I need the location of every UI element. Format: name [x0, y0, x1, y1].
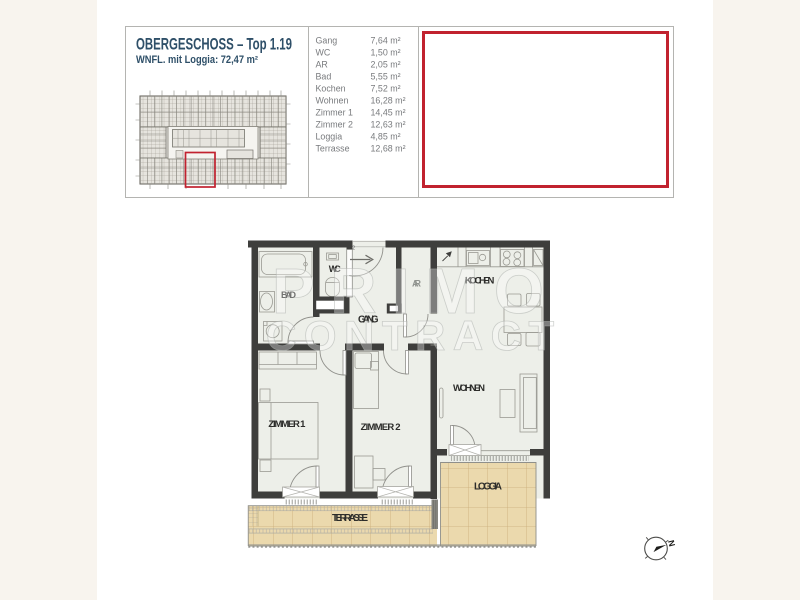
- svg-text:ZIMMER 2: ZIMMER 2: [361, 422, 401, 433]
- svg-text:ZIMMER 1: ZIMMER 1: [268, 419, 306, 430]
- svg-text:7,64 m²: 7,64 m²: [371, 35, 401, 45]
- svg-text:N: N: [666, 539, 677, 547]
- svg-text:7,52 m²: 7,52 m²: [371, 84, 401, 94]
- svg-text:Wohnen: Wohnen: [316, 96, 349, 106]
- svg-text:LOGGIA: LOGGIA: [474, 481, 502, 492]
- svg-text:WOHNEN: WOHNEN: [453, 383, 485, 394]
- svg-text:WC: WC: [316, 47, 331, 57]
- svg-text:5,55 m²: 5,55 m²: [371, 72, 401, 82]
- svg-text:AR: AR: [316, 60, 328, 70]
- svg-text:CONTRACT: CONTRACT: [266, 312, 562, 359]
- svg-text:Zimmer 1: Zimmer 1: [316, 108, 354, 118]
- svg-text:1,50 m²: 1,50 m²: [371, 47, 401, 57]
- svg-text:TERRASSE: TERRASSE: [332, 513, 368, 524]
- svg-text:2: 2: [352, 246, 355, 252]
- svg-text:14,45 m²: 14,45 m²: [371, 108, 406, 118]
- svg-text:Zimmer 2: Zimmer 2: [316, 120, 354, 130]
- svg-text:Gang: Gang: [316, 35, 338, 45]
- svg-text:4,85 m²: 4,85 m²: [371, 132, 401, 142]
- svg-text:OBERGESCHOSS – Top 1.19: OBERGESCHOSS – Top 1.19: [136, 36, 292, 54]
- svg-text:WNFL. mit Loggia: 72,47 m²: WNFL. mit Loggia: 72,47 m²: [136, 54, 258, 66]
- svg-text:16,28 m²: 16,28 m²: [371, 96, 406, 106]
- svg-text:12,63 m²: 12,63 m²: [371, 120, 406, 130]
- svg-text:Bad: Bad: [316, 72, 332, 82]
- svg-text:Terrasse: Terrasse: [316, 144, 350, 154]
- svg-text:2,05 m²: 2,05 m²: [371, 60, 401, 70]
- svg-text:12,68 m²: 12,68 m²: [371, 144, 406, 154]
- svg-text:Kochen: Kochen: [316, 84, 346, 94]
- svg-text:Loggia: Loggia: [316, 132, 343, 142]
